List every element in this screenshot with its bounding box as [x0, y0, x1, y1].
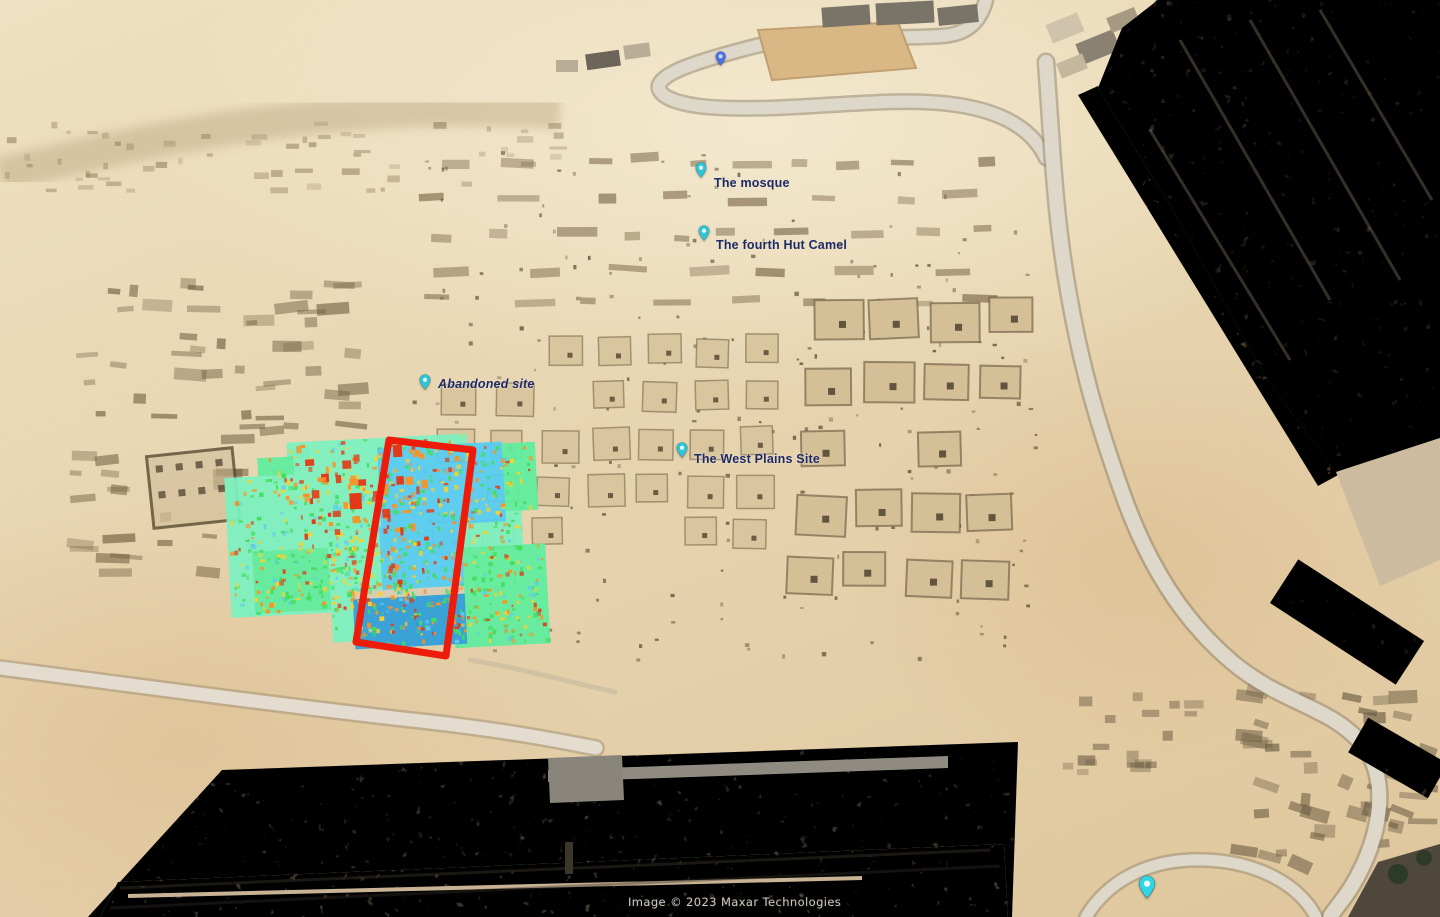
- pin-plains-label: The West Plains Site: [694, 452, 820, 466]
- map-pin-icon: [419, 374, 431, 390]
- roof-block: [548, 755, 624, 803]
- map-pin-icon: [698, 225, 710, 241]
- imagery-attribution: Image © 2023 Maxar Technologies: [628, 895, 841, 909]
- pin-mosque-label: The mosque: [714, 176, 790, 190]
- pin-plains[interactable]: [676, 442, 688, 458]
- tree: [1388, 864, 1408, 884]
- structure-notch: [565, 842, 573, 874]
- pin-mosque[interactable]: [695, 162, 707, 178]
- earth-viewport[interactable]: The mosqueThe fourth Hut CamelAbandoned …: [0, 0, 1440, 917]
- pin-hut-camel-label: The fourth Hut Camel: [716, 238, 847, 252]
- tree: [1416, 850, 1432, 866]
- pin-north[interactable]: [715, 51, 726, 66]
- pin-hut-camel[interactable]: [698, 225, 710, 241]
- road-south-outline: [1086, 860, 1316, 917]
- pin-site-label: Abandoned site: [438, 377, 535, 391]
- map-pin-icon: [715, 51, 726, 66]
- map-pin-icon: [695, 162, 707, 178]
- map-pin-icon: [676, 442, 688, 458]
- dark-mastaba-2: [1348, 718, 1440, 799]
- pin-site[interactable]: [419, 374, 431, 390]
- pin-south[interactable]: [1138, 875, 1156, 899]
- map-pin-icon: [1138, 875, 1156, 899]
